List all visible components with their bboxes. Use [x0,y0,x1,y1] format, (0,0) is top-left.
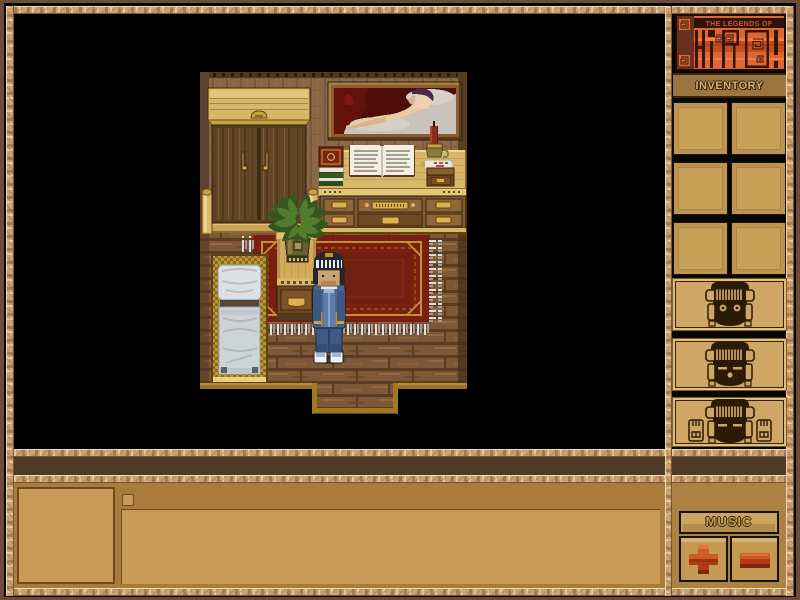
svg-text:THE LEGENDS OF: THE LEGENDS OF [705,21,772,28]
